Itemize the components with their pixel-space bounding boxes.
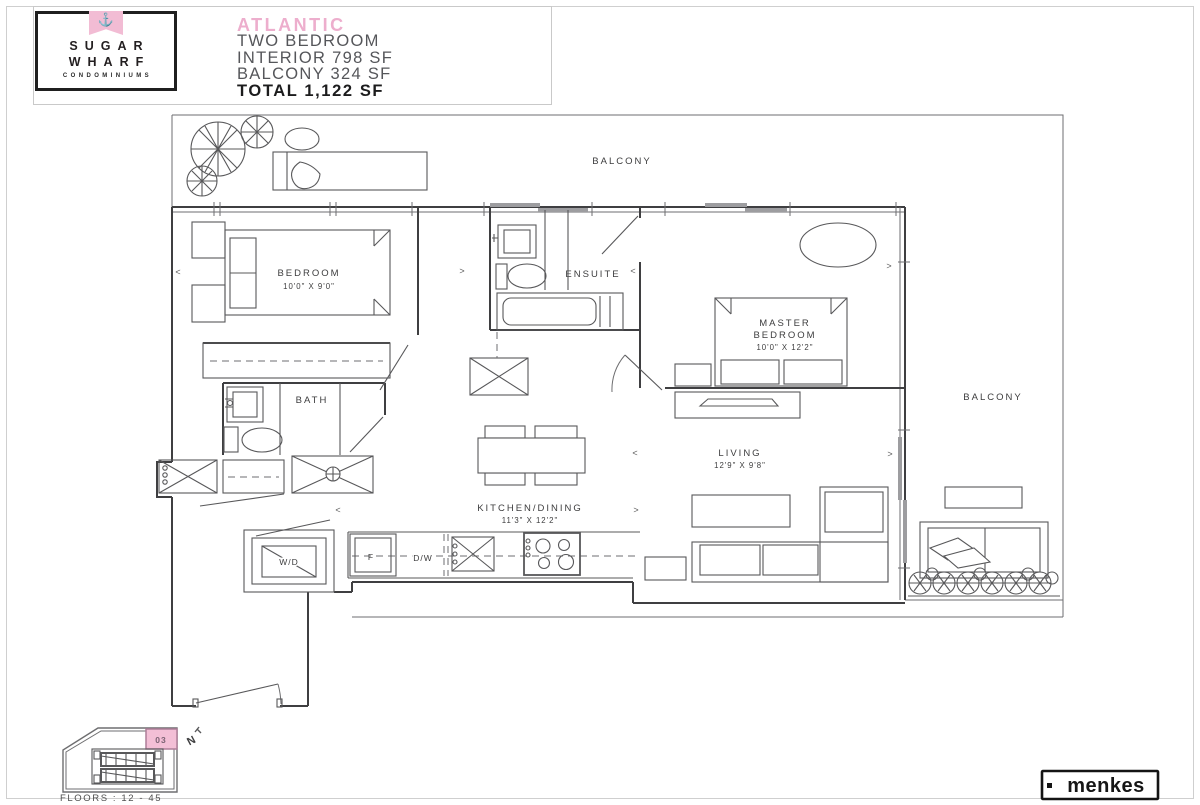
ribbon-banner: ⚓ — [89, 11, 123, 35]
kitchen-sink — [452, 537, 494, 571]
foyer-closet — [223, 460, 284, 493]
interior-sf: INTERIOR 798 SF — [237, 50, 393, 66]
floorplan-sheet: BALCONY BALCONY — [0, 0, 1200, 805]
bedroom-door — [380, 345, 408, 390]
north-arrow-icon: N — [185, 727, 201, 748]
unit-title: ATLANTIC TWO BEDROOM INTERIOR 798 SF BAL… — [237, 17, 393, 99]
nightstand — [675, 364, 711, 386]
marker: < — [630, 266, 635, 276]
bath-sink — [225, 387, 263, 422]
linen-closet — [159, 460, 217, 493]
menkes-brand-text: menkes — [1067, 775, 1145, 797]
balcony-right: BALCONY — [908, 392, 1060, 596]
balcony-side-table — [945, 487, 1022, 508]
total-sf: TOTAL 1,122 SF — [237, 83, 393, 99]
bath-label: BATH — [296, 395, 329, 406]
kitchen-label: KITCHEN/DINING — [477, 503, 583, 514]
ensuite-toilet — [496, 264, 546, 289]
wd-label: W/D — [279, 557, 299, 567]
bedroom: BEDROOM 10'0" X 9'0" — [192, 222, 390, 378]
rug — [800, 223, 876, 267]
fridge-label: F — [368, 552, 374, 562]
keyplan: 03 N FLOORS : 12 - 45 — [60, 727, 201, 804]
kitchen-dining: KITCHEN/DINING 11'3" X 12'2" — [244, 426, 640, 592]
balcony-sf: BALCONY 324 SF — [237, 66, 393, 82]
marker: > — [887, 449, 892, 459]
bedroom-label: BEDROOM — [277, 268, 340, 279]
coffee-table — [692, 495, 790, 527]
master-bed — [715, 298, 847, 386]
nightstand — [192, 285, 225, 322]
hall-closet — [470, 332, 528, 395]
stove — [524, 533, 580, 575]
keyplan-unit-03: 03 — [146, 729, 177, 749]
sugar-wharf-logo: ⚓ SUGAR WHARF CONDOMINIUMS — [35, 11, 177, 91]
entry-door — [193, 684, 282, 707]
balcony-top-label: BALCONY — [592, 156, 651, 167]
north-letter: N — [185, 734, 198, 748]
ensuite-label: ENSUITE — [565, 269, 620, 280]
keyplan-floors-label: FLOORS : 12 - 45 — [60, 793, 162, 804]
foyer-closets — [159, 332, 528, 493]
anchor-icon: ⚓ — [98, 11, 114, 28]
kitchen-dims: 11'3" X 12'2" — [502, 516, 558, 525]
keyplan-core — [92, 749, 163, 784]
dining-table — [478, 426, 585, 485]
logo-word-condominiums: CONDOMINIUMS — [38, 73, 174, 79]
plan-name: ATLANTIC — [237, 17, 393, 33]
menkes-logo: menkes — [1042, 771, 1158, 799]
unit-type: TWO BEDROOM — [237, 33, 393, 49]
balcony-right-label: BALCONY — [963, 392, 1022, 403]
tv-console — [675, 392, 800, 418]
living-label: LIVING — [718, 448, 761, 459]
bath-toilet — [224, 427, 282, 452]
bedroom-dims: 10'0" X 9'0" — [283, 282, 335, 291]
balcony-top: BALCONY — [187, 116, 652, 196]
master-label-1: MASTER — [759, 318, 811, 329]
shower — [292, 456, 373, 493]
floorplan-drawing: BALCONY BALCONY — [0, 0, 1200, 805]
marker: > — [633, 505, 638, 515]
marker: < — [175, 267, 180, 277]
bedroom-closet — [203, 343, 390, 378]
side-table — [645, 557, 686, 580]
doors — [193, 216, 662, 707]
ensuite: ENSUITE — [492, 210, 623, 330]
bath-door — [350, 417, 383, 452]
marker: > — [459, 266, 464, 276]
logo-word-wharf: WHARF — [38, 54, 174, 70]
marker: > — [886, 261, 891, 271]
plant-icon — [187, 116, 273, 196]
marker: < — [335, 505, 340, 515]
wd-closet-door — [256, 520, 330, 536]
ensuite-tub — [497, 293, 623, 330]
keyplan-unit-label: 03 — [155, 735, 166, 745]
lounge-chair — [273, 152, 427, 190]
balcony-table — [285, 128, 319, 150]
logo-word-sugar: SUGAR — [38, 38, 174, 54]
master-door — [612, 355, 662, 392]
dw-label: D/W — [413, 553, 433, 563]
master-dims: 10'0" X 12'2" — [756, 343, 813, 352]
master-label-2: BEDROOM — [753, 330, 816, 341]
living-dims: 12'9" X 9'8" — [714, 461, 766, 470]
ensuite-door — [602, 216, 638, 254]
living-room: LIVING 12'9" X 9'8" — [645, 448, 888, 582]
nightstand — [192, 222, 225, 258]
window-walls — [172, 202, 910, 600]
foyer-closet-door — [200, 494, 284, 506]
marker: < — [632, 448, 637, 458]
